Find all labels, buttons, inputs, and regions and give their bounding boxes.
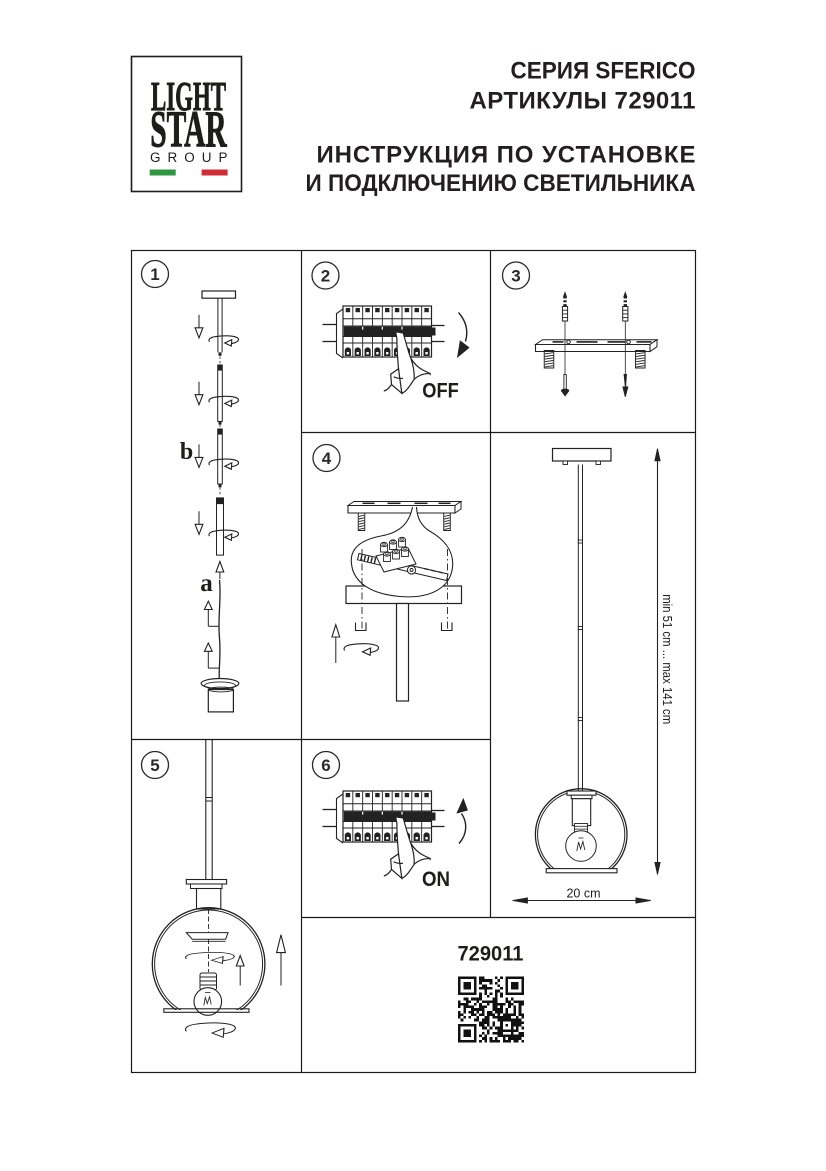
svg-text:1: 1 (150, 265, 159, 284)
svg-text:5: 5 (150, 756, 159, 775)
svg-text:3: 3 (511, 267, 520, 286)
svg-text:OFF: OFF (422, 380, 459, 403)
svg-text:2: 2 (321, 267, 330, 286)
svg-text:min 51 cm ... max 141 cm: min 51 cm ... max 141 cm (660, 594, 674, 724)
svg-text:20 cm: 20 cm (566, 886, 600, 900)
svg-text:ИНСТРУКЦИЯ ПО УСТАНОВКЕ: ИНСТРУКЦИЯ ПО УСТАНОВКЕ (317, 142, 696, 169)
svg-text:И ПОДКЛЮЧЕНИЮ СВЕТИЛЬНИКА: И ПОДКЛЮЧЕНИЮ СВЕТИЛЬНИКА (306, 170, 696, 197)
svg-text:6: 6 (321, 756, 330, 775)
svg-text:b: b (180, 439, 193, 465)
svg-text:СЕРИЯ SFERICO: СЕРИЯ SFERICO (511, 58, 696, 85)
svg-text:4: 4 (322, 449, 332, 468)
svg-text:ON: ON (422, 868, 450, 891)
svg-text:АРТИКУЛЫ 729011: АРТИКУЛЫ 729011 (470, 88, 696, 115)
svg-text:729011: 729011 (458, 943, 524, 966)
svg-text:a: a (200, 570, 213, 597)
